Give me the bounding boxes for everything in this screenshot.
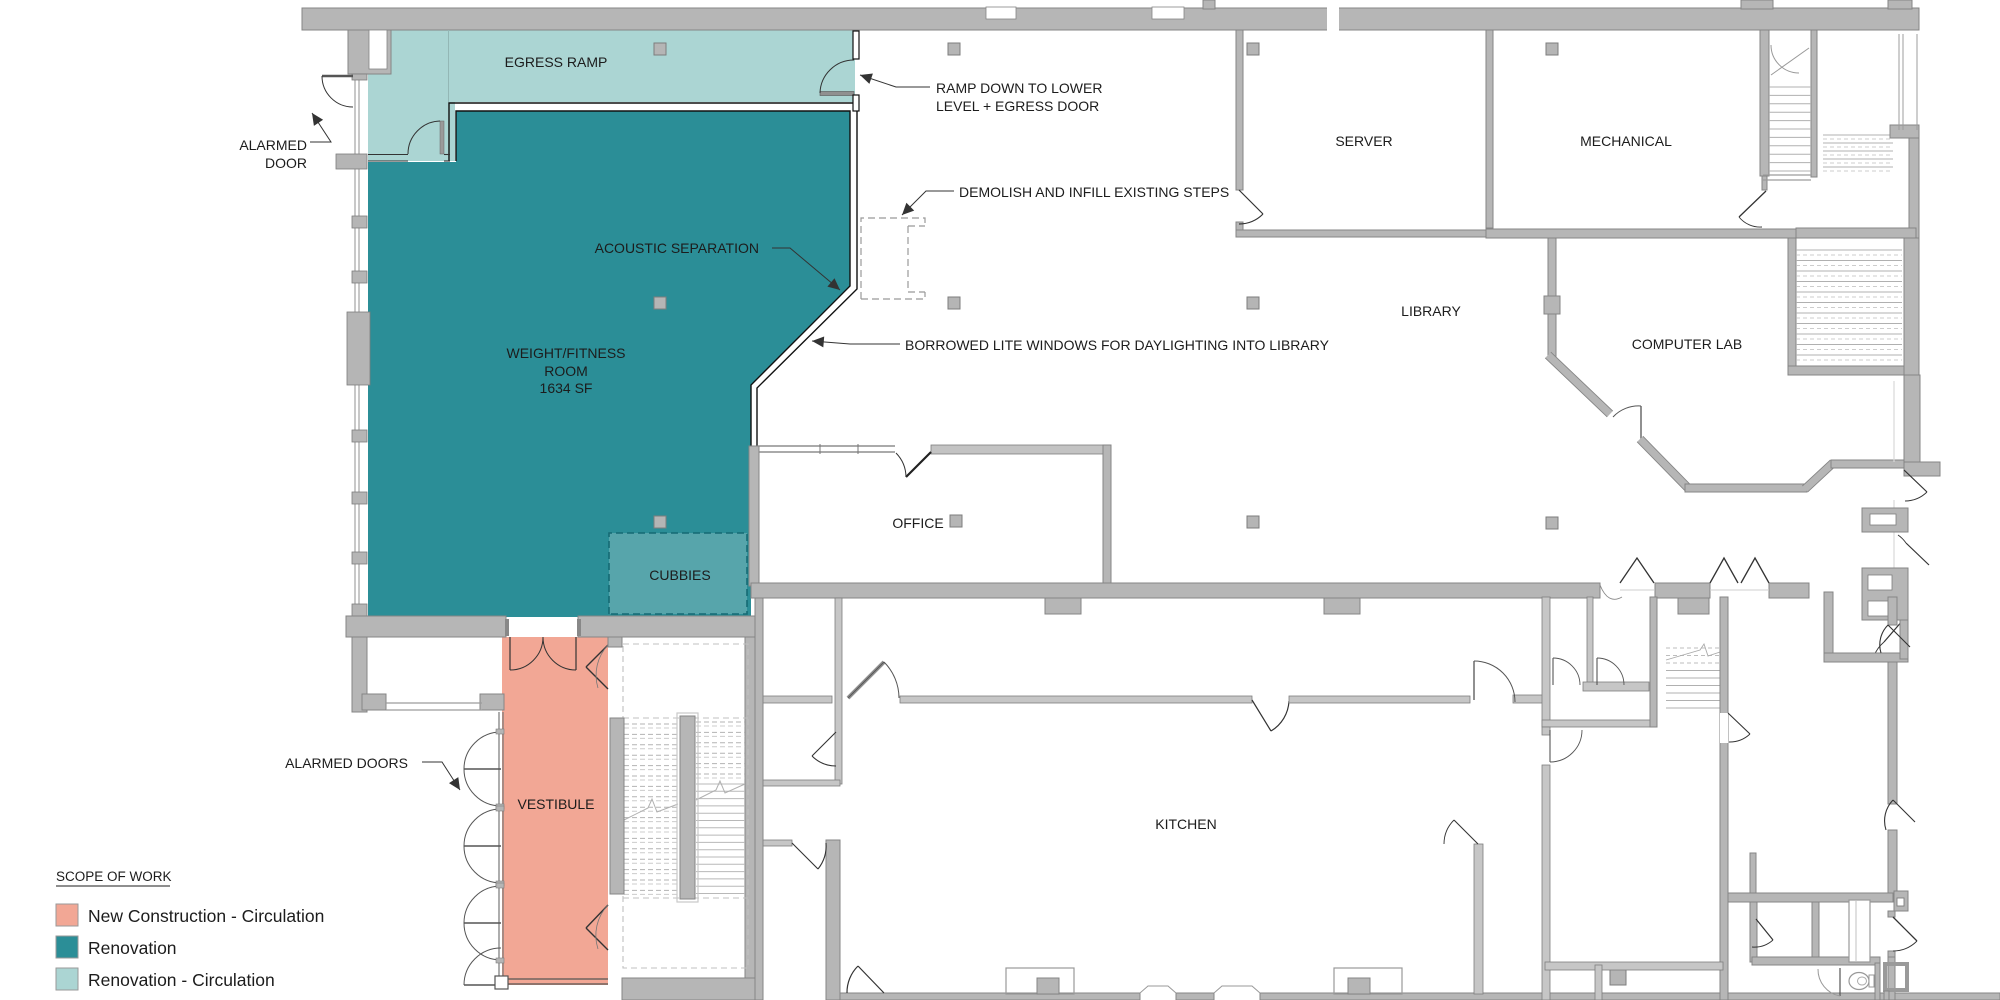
svg-text:KITCHEN: KITCHEN xyxy=(1155,816,1216,832)
svg-text:OFFICE: OFFICE xyxy=(892,515,943,531)
svg-text:ROOM: ROOM xyxy=(544,363,588,379)
svg-text:New Construction - Circulation: New Construction - Circulation xyxy=(88,906,324,926)
svg-text:1634 SF: 1634 SF xyxy=(540,380,593,396)
svg-text:VESTIBULE: VESTIBULE xyxy=(517,796,594,812)
svg-text:DOOR: DOOR xyxy=(265,155,307,171)
svg-text:COMPUTER LAB: COMPUTER LAB xyxy=(1632,336,1742,352)
svg-text:ALARMED DOORS: ALARMED DOORS xyxy=(285,755,408,771)
svg-text:BORROWED LITE WINDOWS FOR DAYL: BORROWED LITE WINDOWS FOR DAYLIGHTING IN… xyxy=(905,337,1330,353)
svg-text:Renovation: Renovation xyxy=(88,938,177,958)
svg-text:ACOUSTIC SEPARATION: ACOUSTIC SEPARATION xyxy=(595,240,759,256)
svg-text:Renovation - Circulation: Renovation - Circulation xyxy=(88,970,275,990)
svg-text:EGRESS RAMP: EGRESS RAMP xyxy=(505,54,608,70)
svg-text:SCOPE OF WORK: SCOPE OF WORK xyxy=(56,869,172,884)
svg-text:RAMP DOWN TO LOWER: RAMP DOWN TO LOWER xyxy=(936,80,1102,96)
svg-text:WEIGHT/FITNESS: WEIGHT/FITNESS xyxy=(507,345,626,361)
svg-text:MECHANICAL: MECHANICAL xyxy=(1580,133,1672,149)
svg-text:ALARMED: ALARMED xyxy=(239,137,307,153)
svg-text:CUBBIES: CUBBIES xyxy=(649,567,710,583)
svg-text:LIBRARY: LIBRARY xyxy=(1401,303,1461,319)
svg-text:DEMOLISH AND INFILL EXISTING S: DEMOLISH AND INFILL EXISTING STEPS xyxy=(959,184,1229,200)
svg-text:SERVER: SERVER xyxy=(1335,133,1392,149)
svg-text:LEVEL + EGRESS DOOR: LEVEL + EGRESS DOOR xyxy=(936,98,1099,114)
